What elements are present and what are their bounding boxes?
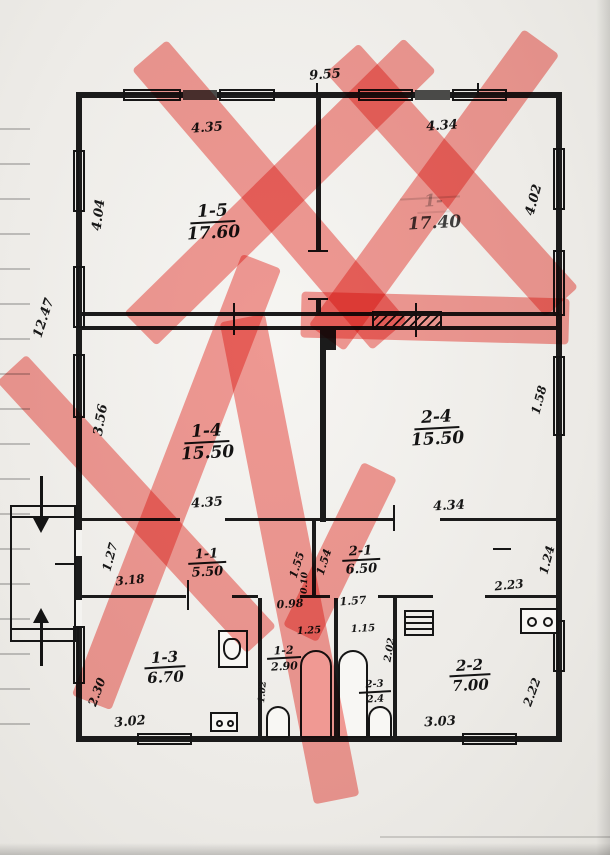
wall	[393, 598, 397, 738]
door-opening	[76, 530, 82, 556]
paper-crease-line	[380, 836, 610, 838]
room-number: 2-2	[449, 657, 491, 677]
window-icon	[462, 733, 517, 745]
room-label: 2-2 7.00	[448, 655, 491, 695]
room-number: 1-3	[144, 649, 186, 669]
dimension-label: 3.03	[424, 714, 456, 731]
room-area: 7.00	[450, 675, 492, 695]
dimension-label: 4.35	[191, 494, 224, 511]
toilet-icon	[368, 706, 392, 738]
dimension-tick	[316, 83, 318, 95]
dimension-label: 12.47	[31, 296, 58, 339]
dimension-tick	[493, 548, 511, 550]
entrance-arrow-icon	[33, 518, 49, 533]
red-cross-stroke	[300, 292, 569, 345]
dimension-label: 4.04	[90, 198, 109, 231]
entrance-arrow-icon	[40, 622, 43, 666]
dimension-label: 4.02	[523, 183, 546, 217]
window-icon	[73, 266, 85, 328]
stove-icon	[520, 608, 558, 634]
entrance-arrow-icon	[33, 608, 49, 623]
cabinet-icon	[404, 610, 434, 636]
room-label: 2-3 2.4	[358, 678, 391, 706]
window-icon	[137, 733, 192, 745]
dimension-label: 1.24	[536, 544, 557, 576]
meter-box-icon	[210, 712, 238, 732]
wall	[440, 518, 562, 521]
dimension-label: 1.57	[339, 594, 367, 609]
dimension-label: 1.15	[351, 623, 376, 635]
dimension-label: 4.34	[433, 498, 465, 515]
porch-step-line	[55, 563, 76, 565]
room-number: 2-4	[414, 408, 460, 430]
window-icon	[219, 89, 275, 101]
wall	[378, 595, 433, 598]
window-icon	[73, 150, 85, 212]
toilet-icon	[266, 706, 290, 738]
room-area: 15.50	[410, 428, 464, 451]
paper-shadow	[0, 843, 610, 855]
wall	[320, 330, 326, 522]
room-number: 2-3	[358, 679, 391, 693]
dimension-label: 3.02	[114, 713, 147, 731]
dimension-label: 1.02	[257, 681, 269, 704]
dimension-label: 1.58	[528, 384, 549, 416]
room-area: 6.70	[145, 667, 187, 687]
porch-step-line	[10, 628, 76, 630]
paper-ruled-lines	[0, 95, 30, 745]
dimension-tick	[393, 505, 395, 531]
dimension-label: 1.27	[99, 541, 120, 573]
wall-pier	[415, 90, 450, 100]
room-area: 2.4	[359, 692, 392, 706]
dimension-label: 2.23	[494, 577, 525, 594]
window-icon	[553, 148, 565, 210]
dimension-label: 2.22	[520, 676, 543, 708]
wall	[485, 595, 562, 598]
room-label: 1-3 6.70	[143, 647, 186, 687]
window-icon	[553, 356, 565, 436]
paper-shadow	[596, 0, 610, 855]
room-label: 2-4 15.50	[409, 406, 464, 450]
door-opening	[76, 600, 82, 626]
entrance-arrow-icon	[40, 476, 43, 520]
scanned-floor-plan-page: 1-5 17.60 1- 17.40 1-4 15.50 2-4 15.50 1…	[0, 0, 610, 855]
